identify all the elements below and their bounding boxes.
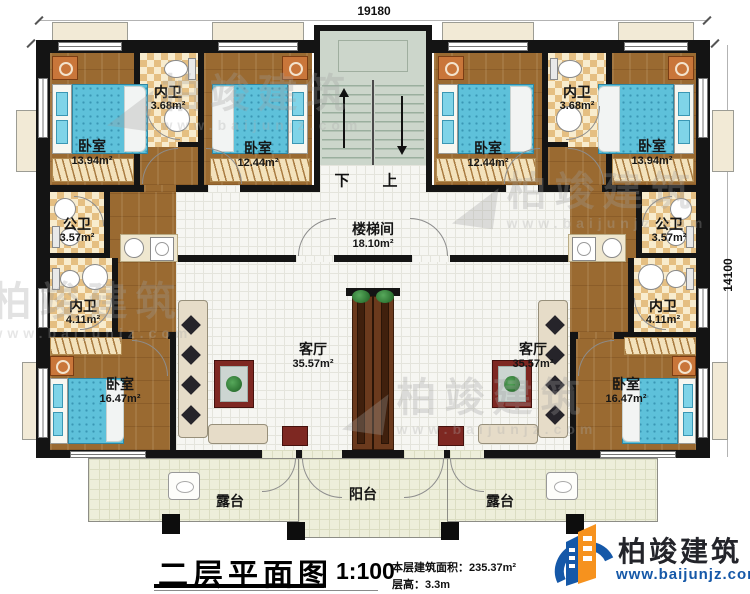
stair-divider <box>372 80 374 165</box>
room-area: 16.47m² <box>606 393 647 405</box>
dimension-tick <box>710 39 719 48</box>
toilet-icon <box>60 270 80 288</box>
door-leaf <box>381 302 389 444</box>
room-label: 卧室 <box>474 138 502 158</box>
area-note: 本层建筑面积：235.37m² <box>392 559 516 575</box>
title-underline <box>154 584 324 588</box>
toilet-icon <box>558 60 582 78</box>
door-gap <box>144 185 176 192</box>
toilet-icon <box>52 268 60 290</box>
plant <box>226 376 242 392</box>
wall <box>426 25 432 192</box>
plant <box>376 290 394 303</box>
room-label: 客厅 <box>299 339 327 359</box>
wall <box>426 185 710 192</box>
bay-window <box>16 110 38 172</box>
room-label: 公卫 <box>655 214 683 234</box>
room-area: 4.11m² <box>66 314 100 326</box>
room-area: 3.68m² <box>151 100 186 112</box>
room-label: 内卫 <box>69 296 97 316</box>
washing-machine-icon <box>572 237 596 261</box>
door-gap <box>568 142 598 147</box>
wall <box>314 25 320 192</box>
bed-pillow <box>683 412 693 436</box>
stair-down-label: 下 <box>334 170 349 191</box>
sofa <box>478 424 538 444</box>
top-dimension-label: 19180 <box>344 4 404 18</box>
room-label: 内卫 <box>649 296 677 316</box>
post <box>441 522 459 540</box>
dimension-tick <box>26 39 35 48</box>
door-gap <box>208 185 240 192</box>
door-gap <box>412 255 450 262</box>
stair-flight-left <box>322 85 371 165</box>
window <box>698 368 708 438</box>
plant <box>504 376 520 392</box>
bed-pillow <box>442 120 454 144</box>
bed-pillow <box>56 92 68 116</box>
tv-stand <box>282 426 308 446</box>
bay-window <box>712 362 728 440</box>
room-label: 卧室 <box>638 136 666 156</box>
window <box>448 42 528 51</box>
bed-pillow <box>442 92 454 116</box>
toilet-icon <box>686 268 694 290</box>
right-dimension-label: 14100 <box>721 247 735 303</box>
bed-sheet <box>510 86 532 152</box>
wall <box>628 258 634 332</box>
window <box>698 288 708 328</box>
room-label: 露台 <box>216 491 244 511</box>
logo: 柏竣建筑 www.baijunjz.com <box>548 518 744 592</box>
toilet-icon <box>164 60 188 78</box>
room-area: 3.57m² <box>60 232 95 244</box>
terrace-basin <box>168 472 200 500</box>
room-label: 客厅 <box>519 339 547 359</box>
title-underline-thin <box>154 590 378 591</box>
post <box>162 514 180 534</box>
wall <box>176 255 570 262</box>
window <box>624 42 688 51</box>
wall <box>104 192 110 253</box>
window <box>38 288 48 328</box>
wall <box>570 332 576 450</box>
window <box>38 368 48 438</box>
window <box>600 451 676 458</box>
door-gap <box>404 450 444 458</box>
nightstand <box>50 356 74 376</box>
closet <box>624 337 696 355</box>
bay-window <box>712 110 734 172</box>
dimension-tick <box>702 16 711 25</box>
door-leaf <box>357 302 365 444</box>
wall <box>36 185 320 192</box>
bed-pillow <box>56 120 68 144</box>
room-label: 卧室 <box>106 374 134 394</box>
toilet-icon <box>686 226 694 248</box>
room-area: 13.94m² <box>632 155 673 167</box>
top-dimension-line <box>40 20 708 21</box>
stair-arrow-up <box>401 96 403 148</box>
room-label: 内卫 <box>563 82 591 102</box>
floor-plan-canvas: 19180 14100 <box>0 0 750 594</box>
wall <box>542 53 548 185</box>
room-area: 12.44m² <box>468 157 509 169</box>
room-area: 4.11m² <box>646 314 680 326</box>
partition-gap <box>372 296 374 450</box>
bed-pillow <box>683 384 693 408</box>
room-label: 卧室 <box>612 374 640 394</box>
window <box>698 78 708 138</box>
bed-sheet <box>598 86 620 152</box>
window <box>58 42 122 51</box>
door-gap <box>296 255 334 262</box>
logo-text: 柏竣建筑 <box>618 530 742 570</box>
wall <box>112 258 118 332</box>
closet <box>50 337 122 355</box>
nightstand <box>52 56 78 80</box>
door-gap <box>570 185 602 192</box>
wall <box>170 332 176 450</box>
sink-icon <box>82 264 108 290</box>
nightstand <box>438 56 464 80</box>
stair-landing-outline <box>338 40 408 72</box>
room-area: 16.47m² <box>100 393 141 405</box>
room-label: 公卫 <box>63 214 91 234</box>
door-gap <box>506 185 538 192</box>
toilet-icon <box>188 58 196 80</box>
sink-icon <box>638 264 664 290</box>
sink-icon <box>124 238 144 258</box>
terrace-basin <box>546 472 578 500</box>
room-label: 阳台 <box>349 484 377 504</box>
bed-sheet <box>212 86 234 152</box>
wall <box>636 192 642 253</box>
stair-arrow-head <box>397 146 407 155</box>
bed-sheet <box>124 86 146 152</box>
logo-icon <box>548 520 614 592</box>
room-label: 卧室 <box>244 138 272 158</box>
room-label: 露台 <box>486 491 514 511</box>
room-area: 35.57m² <box>513 358 554 370</box>
door-gap <box>450 450 484 458</box>
tv-stand <box>438 426 464 446</box>
room-area: 3.57m² <box>652 232 687 244</box>
toilet-icon <box>666 270 686 288</box>
room-label: 内卫 <box>154 82 182 102</box>
sink-icon <box>602 238 622 258</box>
room-area: 3.68m² <box>560 100 595 112</box>
stair-arrow-down <box>343 96 345 148</box>
door-gap <box>262 450 296 458</box>
room-area: 18.10m² <box>353 238 394 250</box>
bed-pillow <box>292 120 304 144</box>
room-area: 35.57m² <box>293 358 334 370</box>
room-area: 13.94m² <box>72 155 113 167</box>
door-gap <box>302 450 342 458</box>
stair-arrow-head <box>339 88 349 97</box>
bed-pillow <box>53 412 63 436</box>
wall <box>36 253 110 258</box>
post <box>287 522 305 540</box>
nightstand <box>668 56 694 80</box>
nightstand <box>282 56 308 80</box>
wall <box>314 25 432 31</box>
window <box>38 78 48 138</box>
bed-pillow <box>678 120 690 144</box>
washing-machine-icon <box>150 237 174 261</box>
bed-pillow <box>678 92 690 116</box>
wall <box>636 253 710 258</box>
scale-label: 1:100 <box>336 558 395 585</box>
plant <box>352 290 370 303</box>
toilet-icon <box>550 58 558 80</box>
door-gap <box>148 142 178 147</box>
door-gap <box>132 332 168 339</box>
bed-pillow <box>292 92 304 116</box>
room-label: 楼梯间 <box>352 219 394 239</box>
window <box>70 451 146 458</box>
room-area: 12.44m² <box>238 157 279 169</box>
logo-url: www.baijunjz.com <box>616 566 750 583</box>
stair-up-label: 上 <box>382 170 397 191</box>
nightstand <box>672 356 696 376</box>
window <box>218 42 298 51</box>
door-gap <box>578 332 614 339</box>
bed-pillow <box>53 384 63 408</box>
wall <box>198 53 204 185</box>
height-note: 层高：3.3m <box>392 576 450 592</box>
room-label: 卧室 <box>78 136 106 156</box>
sofa <box>208 424 268 444</box>
